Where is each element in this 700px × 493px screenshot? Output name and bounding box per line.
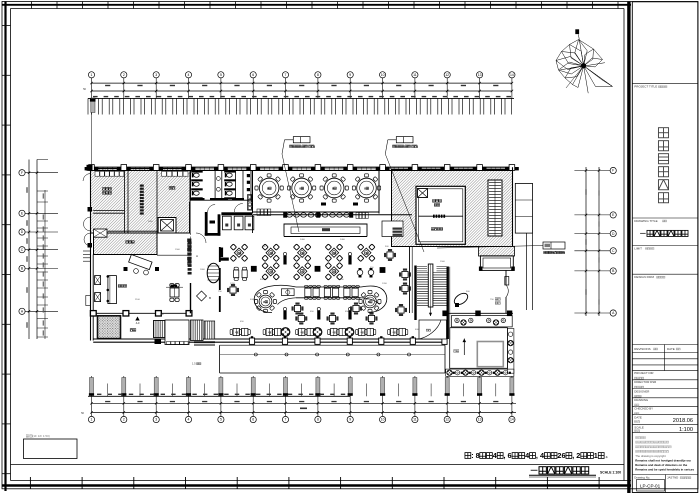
svg-text:3: 3 (155, 418, 157, 422)
svg-text:3: 3 (155, 73, 157, 77)
svg-text:4: 4 (188, 73, 190, 77)
svg-text:Remains and dask of dimelons o: Remains and dask of dimelons on the (635, 463, 687, 467)
svg-text:8: 8 (317, 418, 319, 422)
svg-text:1200: 1200 (382, 283, 388, 285)
svg-text:8: 8 (317, 73, 319, 77)
svg-text:14: 14 (510, 418, 514, 422)
svg-text:7: 7 (285, 73, 287, 77)
svg-text:The drawing is copyright: The drawing is copyright (635, 454, 666, 458)
svg-text:1: 1 (91, 418, 93, 422)
svg-text:PROJECT DIR: PROJECT DIR (634, 371, 653, 375)
svg-text:4: 4 (188, 418, 190, 422)
svg-text:1200: 1200 (230, 283, 236, 285)
svg-text:2400: 2400 (340, 239, 346, 241)
svg-text:2018.06: 2018.06 (673, 418, 693, 424)
svg-text:1: 1 (594, 451, 598, 460)
svg-text:DATE: DATE (667, 347, 675, 351)
svg-text:11: 11 (413, 418, 417, 422)
svg-text:B: B (209, 296, 211, 300)
svg-text:): ) (564, 250, 565, 254)
svg-text:26: 26 (557, 451, 565, 460)
svg-text:7: 7 (285, 418, 287, 422)
svg-text:DATE: DATE (634, 416, 642, 420)
svg-text:3600: 3600 (148, 221, 154, 223)
svg-text:2: 2 (123, 418, 125, 422)
svg-text:13: 13 (478, 418, 482, 422)
svg-text:PROJECT TITLE: PROJECT TITLE (634, 85, 657, 89)
svg-text:Drawing No.: Drawing No. (634, 476, 650, 480)
svg-text:): ) (417, 144, 418, 148)
svg-text:12: 12 (445, 418, 449, 422)
svg-text:SCALE 1:100: SCALE 1:100 (600, 471, 621, 475)
svg-text:1500: 1500 (175, 249, 181, 251)
svg-text:2400: 2400 (300, 239, 306, 241)
svg-text:SCALE: SCALE (634, 425, 644, 429)
svg-text:F: F (21, 171, 23, 175)
svg-text:12: 12 (445, 73, 449, 77)
svg-text:6: 6 (252, 73, 254, 77)
svg-text:LP-CP-01: LP-CP-01 (640, 483, 661, 488)
svg-text:LIMIT: LIMIT (634, 246, 642, 250)
svg-text:): ) (314, 144, 315, 148)
svg-text:9: 9 (349, 73, 351, 77)
svg-text:Remains and be speid hendelely: Remains and be speid hendelely in serice… (635, 468, 694, 472)
svg-text:DESIGNER: DESIGNER (634, 389, 649, 393)
svg-text:CHECKED BY: CHECKED BY (634, 407, 653, 411)
svg-text:(1F 1/F 1:50): (1F 1/F 1:50) (32, 434, 49, 438)
svg-text:13: 13 (478, 73, 482, 77)
svg-text:, 4: , 4 (536, 451, 545, 460)
svg-text:5: 5 (220, 73, 222, 77)
svg-text:DESIGN FIRM: DESIGN FIRM (634, 275, 654, 279)
svg-text:1500: 1500 (440, 261, 446, 263)
svg-text:DRAWING TITLE: DRAWING TITLE (634, 219, 657, 223)
svg-text:Remains shall not hovtiged dra: Remains shall not hovtiged dransllje ory (635, 458, 691, 462)
svg-text:: 8: : 8 (471, 451, 480, 460)
svg-text:DRAWING: DRAWING (634, 398, 649, 402)
svg-text:5: 5 (220, 418, 222, 422)
svg-text:F: F (612, 169, 614, 173)
svg-text:, 6: , 6 (504, 451, 512, 460)
svg-text:10: 10 (381, 418, 385, 422)
svg-text:9: 9 (349, 418, 351, 422)
svg-text:2: 2 (123, 73, 125, 77)
svg-text:6: 6 (252, 418, 254, 422)
svg-text:1: 1 (91, 73, 93, 77)
svg-text:1800: 1800 (200, 269, 206, 271)
svg-text:2100: 2100 (135, 299, 141, 301)
svg-text:1.5: 1.5 (192, 362, 196, 366)
svg-text:1:100: 1:100 (679, 427, 693, 433)
svg-text:REVISIONS: REVISIONS (634, 347, 650, 351)
svg-text:DIRECTOR DSR: DIRECTOR DSR (634, 380, 656, 384)
svg-text:A: A (196, 254, 198, 258)
svg-text:, 2: , 2 (572, 451, 580, 460)
svg-text:JASTND: JASTND (667, 476, 678, 480)
svg-text:10: 10 (381, 73, 385, 77)
svg-text:(: ( (553, 250, 554, 254)
svg-text:11: 11 (413, 73, 417, 77)
svg-text:14: 14 (510, 73, 514, 77)
